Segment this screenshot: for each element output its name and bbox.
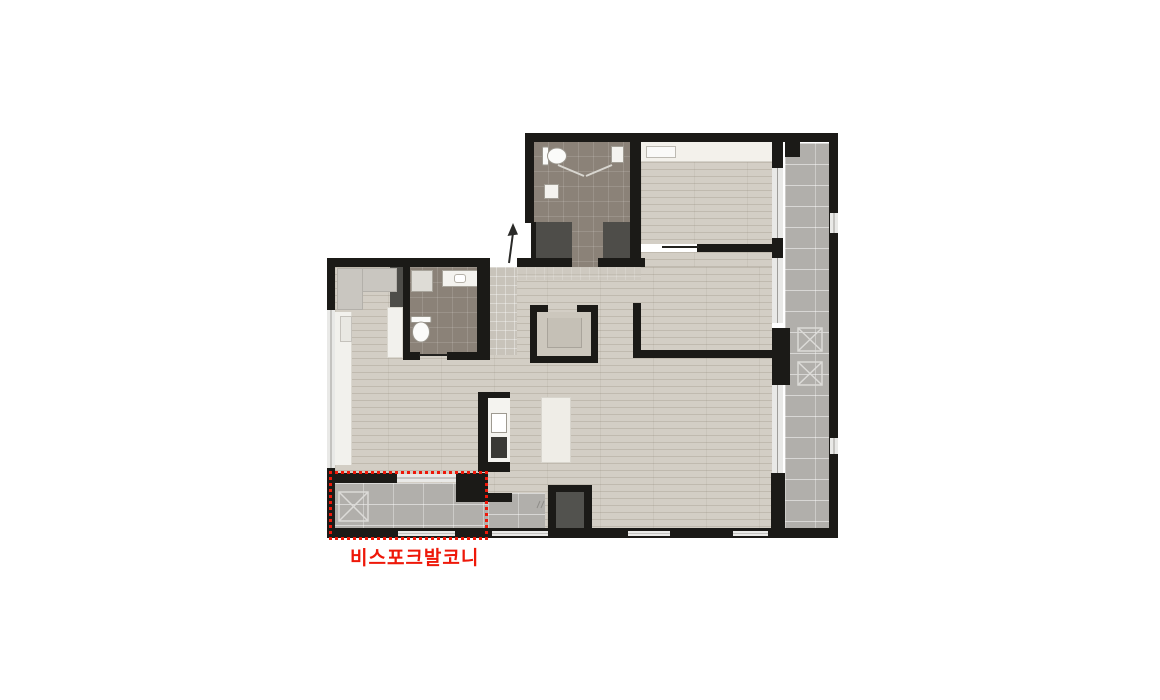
x-mark-icon (797, 327, 823, 352)
wall-bedroom2-left (633, 303, 641, 358)
hatch-mark-icon (534, 500, 546, 509)
right-outer-window-1 (830, 213, 838, 233)
sofa-arm (337, 268, 363, 310)
wall-bedroom-divider (697, 244, 772, 252)
shower-area (411, 270, 433, 292)
outer-wall-upper-left (525, 133, 534, 223)
bathroom-basin (611, 146, 624, 163)
bedroom2-window (772, 258, 783, 323)
walkin-wall-bottom (530, 356, 598, 363)
kitchen-cooktop (491, 437, 507, 458)
porch-wall (488, 493, 512, 502)
x-mark-icon (797, 361, 823, 386)
bedroom1-window (772, 168, 783, 238)
bottom-window-4 (733, 531, 768, 536)
walkin-closet-shelf (547, 318, 582, 348)
entry-hall-floor (487, 267, 517, 355)
wall-bath-bedroom (630, 133, 641, 262)
kitchen-island (541, 397, 571, 463)
vanity-basin (454, 274, 466, 283)
walkin-wall-right (591, 305, 598, 363)
sliding-door-line (662, 246, 699, 248)
bath2-wall-right (477, 267, 490, 360)
balcony-corner-notch (785, 141, 800, 157)
bathroom-sink (544, 184, 559, 199)
shower-door-icon (556, 163, 614, 179)
wall-lower-top-a (327, 258, 490, 267)
bath2-door-line (419, 354, 448, 356)
bath2-wall-bottom-a (403, 352, 420, 360)
bath2-wall-bottom-b (447, 352, 490, 360)
bespoke-balcony-highlight (329, 471, 488, 540)
counter-appliance (340, 316, 352, 342)
bespoke-balcony-label: 비스포크발코니 (350, 543, 479, 570)
bath2-wall-left (403, 267, 410, 355)
bottom-window-2 (492, 531, 548, 536)
wall-lower-top-b (517, 258, 572, 267)
wardrobe-box (646, 146, 676, 158)
hallway-tile-strip (517, 267, 641, 280)
wall-right-inner-1 (772, 141, 783, 168)
outer-wall-right (829, 133, 838, 538)
floor-plan: 비스포크발코니 (0, 0, 1160, 700)
walkin-wall-top-left (530, 305, 548, 312)
living-window-right (772, 385, 783, 473)
cabinet-strip (387, 307, 403, 358)
walkin-wall-left (530, 305, 537, 363)
wall-right-inner-2 (772, 238, 783, 258)
closet-left-edge-wall (531, 222, 536, 262)
wall-right-inner-3 (771, 473, 785, 528)
wall-balcony-divider (772, 328, 790, 385)
left-wall-window (327, 310, 335, 468)
right-outer-window-2 (830, 438, 838, 454)
bottom-window-3 (628, 531, 670, 536)
entrance-arrow-icon (501, 223, 521, 265)
wall-bedroom2-bottom (633, 350, 785, 358)
kitchen-sink (491, 413, 507, 433)
closet-left (536, 222, 572, 262)
entry-closet (556, 492, 584, 531)
toilet-icon (409, 316, 433, 343)
